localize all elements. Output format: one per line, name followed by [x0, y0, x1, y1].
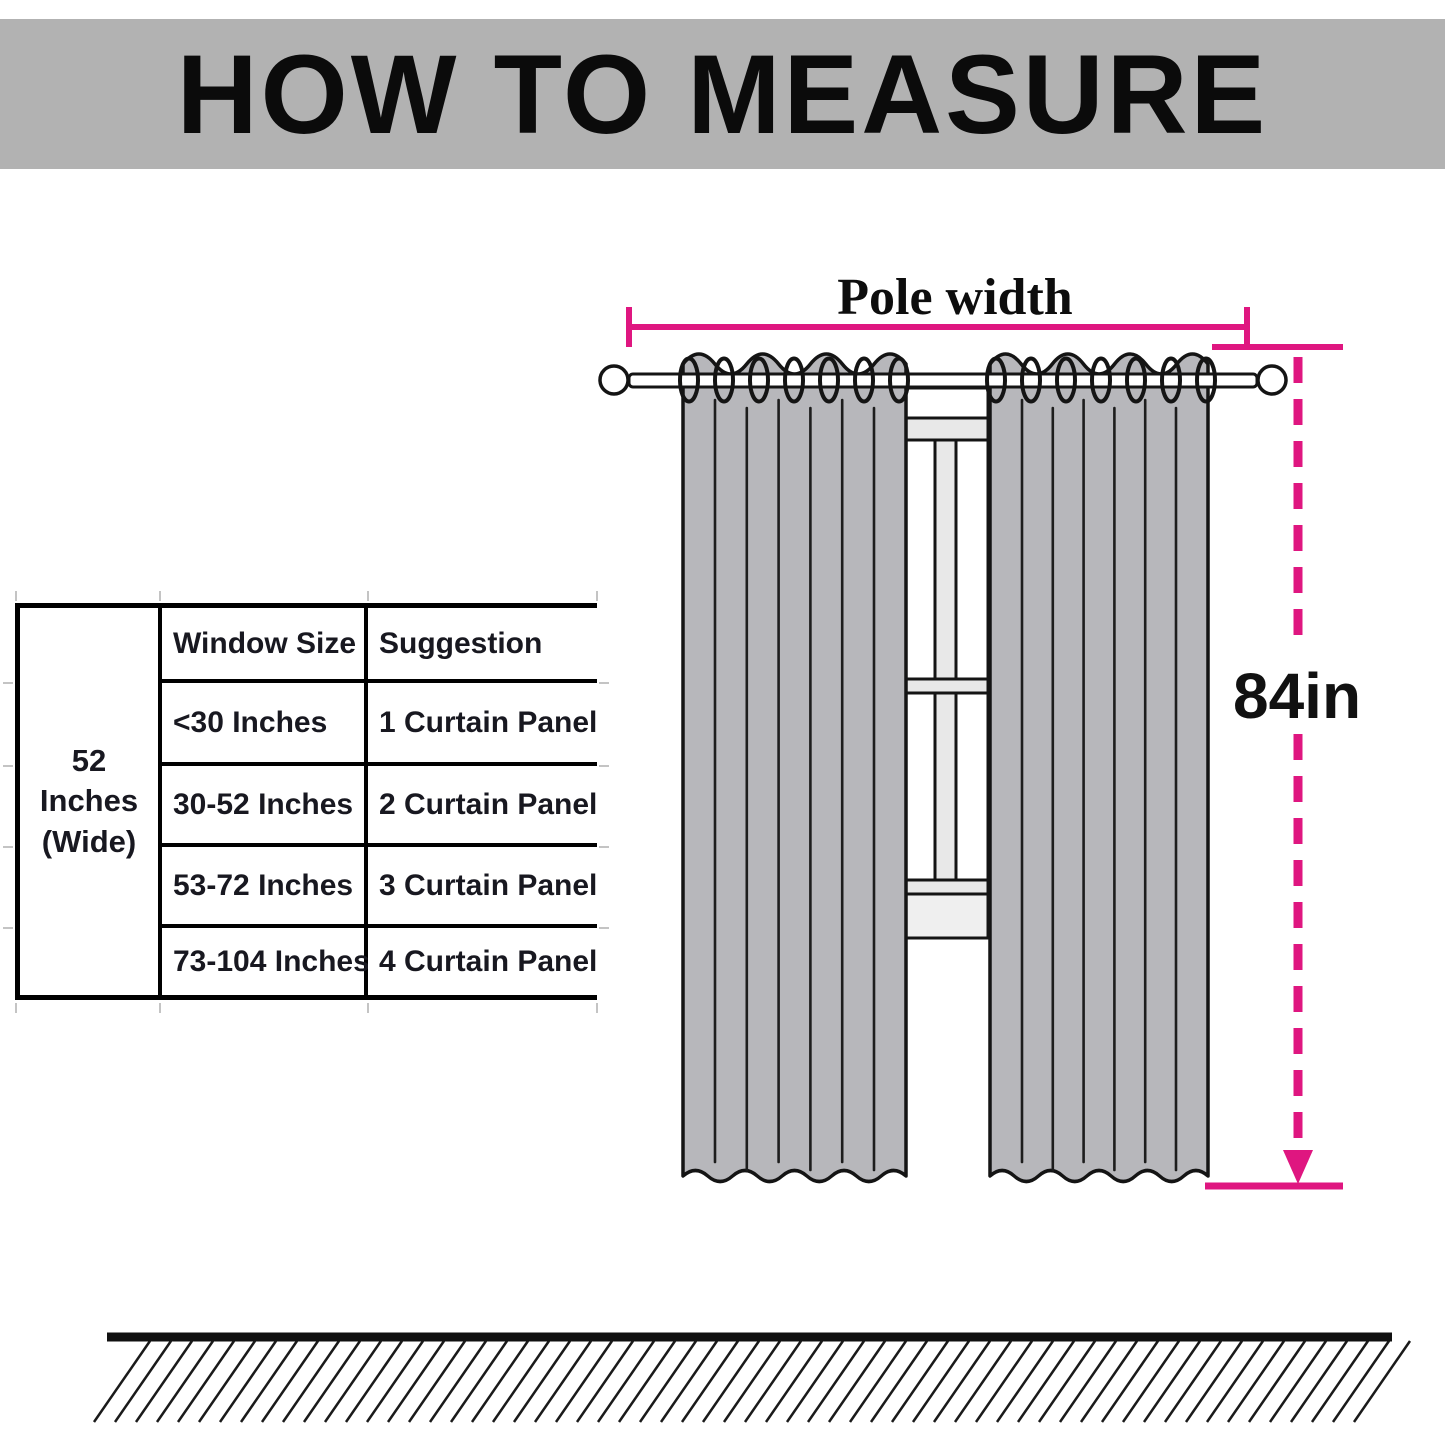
header-banner: HOW TO MEASURE: [0, 19, 1445, 169]
floor: [94, 1337, 1410, 1422]
col-header-window-size: Window Size: [162, 608, 368, 683]
window-middle-bar: [903, 679, 988, 693]
col-header-suggestion: Suggestion: [368, 608, 597, 683]
table-side-cell: 52 Inches (Wide): [20, 608, 162, 995]
window: [903, 388, 988, 938]
table-cell-suggestion: 4 Curtain Panel: [368, 928, 597, 995]
rod-finial-left: [600, 366, 628, 394]
size-table: 52 Inches (Wide) Window Size Suggestion …: [15, 603, 597, 1000]
side-label-line1: 52 Inches: [20, 741, 158, 822]
side-label-line2: (Wide): [42, 822, 136, 862]
how-to-measure-infographic: Pole width 84in HOW TO MEASURE 52 Inches…: [0, 0, 1445, 1445]
pole-width-label: Pole width: [837, 269, 1073, 326]
height-label: 84in: [1233, 660, 1361, 732]
table-cell-window-size: 73-104 Inches: [162, 928, 368, 995]
left-curtain-panel: [683, 354, 906, 1182]
table-cell-suggestion: 1 Curtain Panel: [368, 683, 597, 766]
table-cell-window-size: <30 Inches: [162, 683, 368, 766]
table-cell-window-size: 30-52 Inches: [162, 766, 368, 847]
table-cell-suggestion: 3 Curtain Panel: [368, 847, 597, 928]
window-center-mullion: [935, 440, 956, 880]
rod-finial-right: [1258, 366, 1286, 394]
window-top-band: [903, 418, 988, 440]
window-sill-box: [903, 894, 988, 938]
height-arrowhead: [1283, 1150, 1313, 1184]
window-sill-strip: [903, 880, 988, 894]
table-cell-suggestion: 2 Curtain Panel: [368, 766, 597, 847]
page-title: HOW TO MEASURE: [177, 30, 1269, 159]
floor-hatching: [94, 1341, 1410, 1422]
table-cell-window-size: 53-72 Inches: [162, 847, 368, 928]
